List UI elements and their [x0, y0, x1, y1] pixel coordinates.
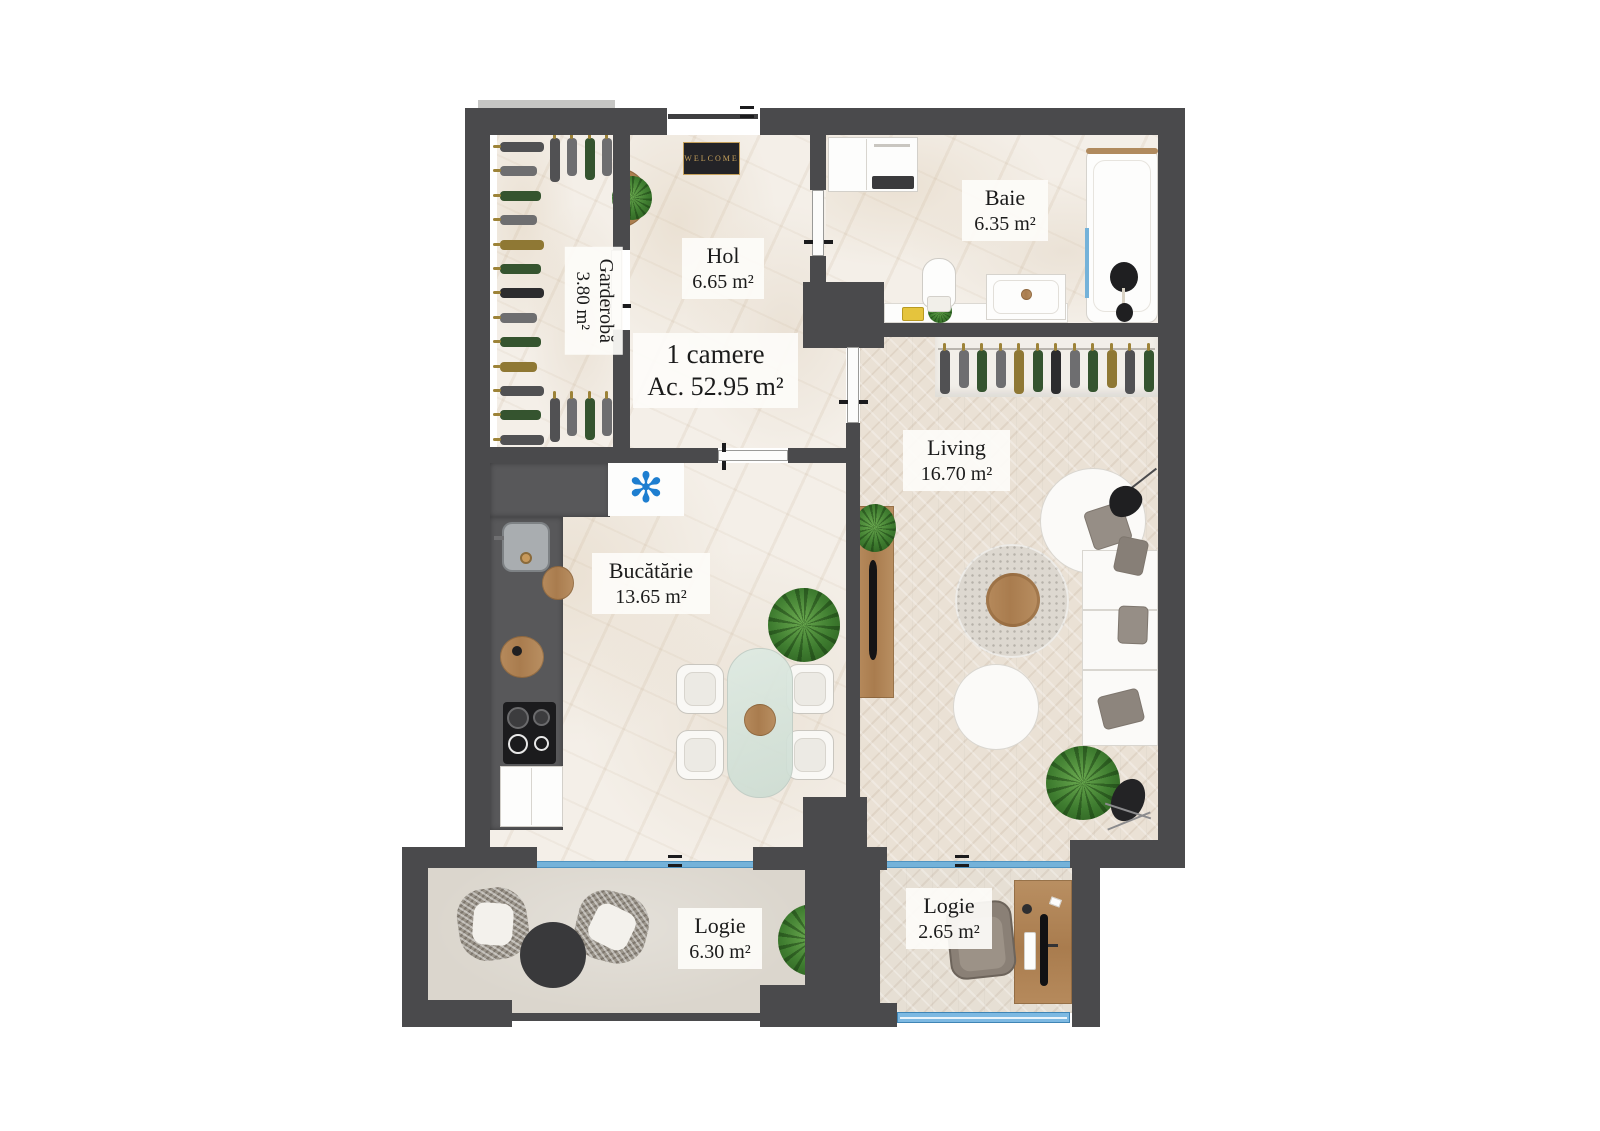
hanger-item [1033, 350, 1043, 392]
induction-zone [508, 734, 528, 754]
wall-garderoba-right-upper [613, 135, 630, 250]
room-name: Hol [686, 243, 760, 270]
dining-table-centerpiece [744, 704, 776, 736]
hanger-item [567, 138, 577, 176]
hanger-item [550, 398, 560, 442]
hanger-item [500, 215, 537, 225]
gas-burner [533, 709, 550, 726]
hanger-item [959, 350, 969, 388]
pier-loggia-bottom-left [402, 1000, 512, 1027]
living-door-handle [839, 400, 848, 404]
entrance-door-handle [740, 106, 754, 118]
washing-machine-panel [874, 144, 910, 147]
toilet-tank [927, 296, 951, 312]
room-area: 6.30 m² [682, 940, 758, 964]
hanger-item [550, 138, 560, 182]
window-kitchen-loggia [537, 861, 753, 868]
coffee-table [986, 573, 1040, 627]
hanger-item [977, 350, 987, 392]
apartment-title: 1 camere Ac. 52.95 m² [633, 333, 798, 408]
tv-stand-plant [854, 504, 896, 552]
welcome-doormat-text: WELCOME [684, 154, 738, 163]
room-name: Bucătărie [596, 558, 706, 585]
window-handle [668, 855, 682, 867]
living-rack-hangers [940, 350, 1154, 396]
kitchen-side-table [500, 636, 544, 678]
room-name: Logie [682, 913, 758, 940]
dining-chair [676, 730, 724, 780]
ac-asterisk-icon: ✻ [628, 468, 663, 510]
kitchen-plant [768, 588, 840, 662]
wall-bath-left-upper [810, 135, 826, 190]
hanger-item [500, 362, 537, 372]
living-plant [1046, 746, 1120, 820]
kitchen-door [718, 450, 788, 461]
room-label-bucatarie: Bucătărie 13.65 m² [592, 553, 710, 614]
hanger-item [585, 398, 595, 440]
dining-chair [786, 664, 834, 714]
living-door [847, 347, 859, 423]
hanger-item [500, 386, 544, 396]
bathtub-wood-edge [1086, 148, 1158, 154]
room-name: Logie [910, 893, 988, 920]
garderoba-hangers-left [500, 142, 550, 445]
dining-chair [786, 730, 834, 780]
hanger-item [500, 142, 544, 152]
dining-chair [676, 664, 724, 714]
window-living-loggia [887, 861, 1070, 868]
room-area: 16.70 m² [907, 462, 1006, 486]
garderoba-door-handle [622, 304, 631, 308]
wall-top-left [465, 108, 667, 135]
loggia-rail [512, 1013, 772, 1021]
glazing-loggia-right [897, 1012, 1070, 1023]
monitor [1040, 914, 1048, 986]
garderoba-hangers-top [550, 138, 612, 190]
hanger-item [1144, 350, 1154, 392]
tv-screen [869, 560, 877, 660]
hanger-item [500, 166, 537, 176]
floor-plan: WELCOME ✻ [0, 0, 1600, 1131]
hanger-item [940, 350, 950, 394]
bathroom-door-handle [824, 240, 833, 244]
hanger-item [1088, 350, 1098, 392]
sink-drain [520, 552, 532, 564]
hanger-item [500, 264, 541, 274]
bath-fixture [1116, 303, 1133, 322]
hanger-item [996, 350, 1006, 388]
wall-loggia-divider [805, 847, 880, 1027]
cabinet-seam [531, 768, 532, 825]
wall-kitchen-living [846, 423, 860, 797]
pier-loggia-right-left [880, 1003, 897, 1027]
hanger-item [500, 313, 537, 323]
wall-bath-bottom [884, 323, 1158, 337]
sink-faucet [494, 536, 504, 540]
hanger-item [1070, 350, 1080, 388]
washing-machine-seam [866, 139, 867, 190]
room-name: Garderobă [593, 251, 617, 351]
apartment-type: 1 camere [637, 338, 794, 371]
ac-unit-box: ✻ [608, 462, 684, 516]
monitor-stand [1048, 944, 1058, 947]
mug [1022, 904, 1032, 914]
room-area: 13.65 m² [596, 585, 706, 609]
hanger-item [500, 288, 544, 298]
hanger-item [500, 435, 544, 445]
hanger-item [500, 191, 541, 201]
room-area: 6.35 m² [966, 212, 1044, 236]
wall-top-right [760, 108, 1185, 135]
wall-block-center [803, 282, 884, 348]
window-handle [955, 855, 969, 867]
vanity-faucet [1021, 289, 1032, 300]
hanger-item [1051, 350, 1061, 394]
kitchen-sink [502, 522, 550, 572]
bathroom-door [812, 190, 824, 256]
room-name: Living [907, 435, 1006, 462]
welcome-doormat: WELCOME [683, 142, 740, 175]
kitchen-counter-top [490, 463, 610, 517]
hanger-item [500, 337, 541, 347]
room-area: 3.80 m² [570, 251, 593, 351]
room-label-logie-right: Logie 2.65 m² [906, 888, 992, 949]
hanger-item [500, 410, 541, 420]
wall-bath-left-lower [810, 256, 826, 282]
room-name: Baie [966, 185, 1044, 212]
hanger-item [602, 398, 612, 436]
room-area: 6.65 m² [686, 270, 760, 294]
wall-garderoba-bottom [465, 447, 630, 463]
garderoba-hangers-bottom [550, 398, 612, 446]
cutting-board [542, 566, 574, 600]
wall-loggia-right [1072, 840, 1100, 1027]
hanger-item [1125, 350, 1135, 394]
apartment-area: Ac. 52.95 m² [637, 371, 794, 403]
room-label-living: Living 16.70 m² [903, 430, 1010, 491]
room-area: 2.65 m² [910, 920, 988, 944]
loggia-table [520, 922, 586, 988]
wall-hol-kitchen-left [630, 448, 718, 463]
hanger-item [1014, 350, 1024, 394]
room-label-garderoba: Garderobă 3.80 m² [565, 247, 623, 355]
towel-yellow [902, 307, 924, 321]
room-label-baie: Baie 6.35 m² [962, 180, 1048, 241]
room-label-hol: Hol 6.65 m² [682, 238, 764, 299]
kitchen-door-handle [722, 461, 726, 470]
kitchen-door-handle [722, 443, 726, 452]
bottle [512, 646, 522, 656]
wall-left [465, 108, 490, 848]
hanger-item [602, 138, 612, 176]
hanger-item [585, 138, 595, 180]
gas-burner [507, 707, 529, 729]
wall-hol-kitchen-right [788, 448, 848, 463]
wall-right [1158, 108, 1185, 868]
living-door-handle [859, 400, 868, 404]
hanger-item [567, 398, 577, 436]
induction-zone [534, 736, 549, 751]
room-label-logie-left: Logie 6.30 m² [678, 908, 762, 969]
washing-machine-vent [872, 176, 914, 189]
bathroom-door-handle [804, 240, 813, 244]
keyboard [1024, 932, 1036, 970]
ottoman [953, 664, 1039, 750]
sofa-pillow [1117, 605, 1148, 644]
hanger-item [1107, 350, 1117, 388]
shower-glass-screen [1085, 228, 1089, 298]
hanger-item [500, 240, 544, 250]
